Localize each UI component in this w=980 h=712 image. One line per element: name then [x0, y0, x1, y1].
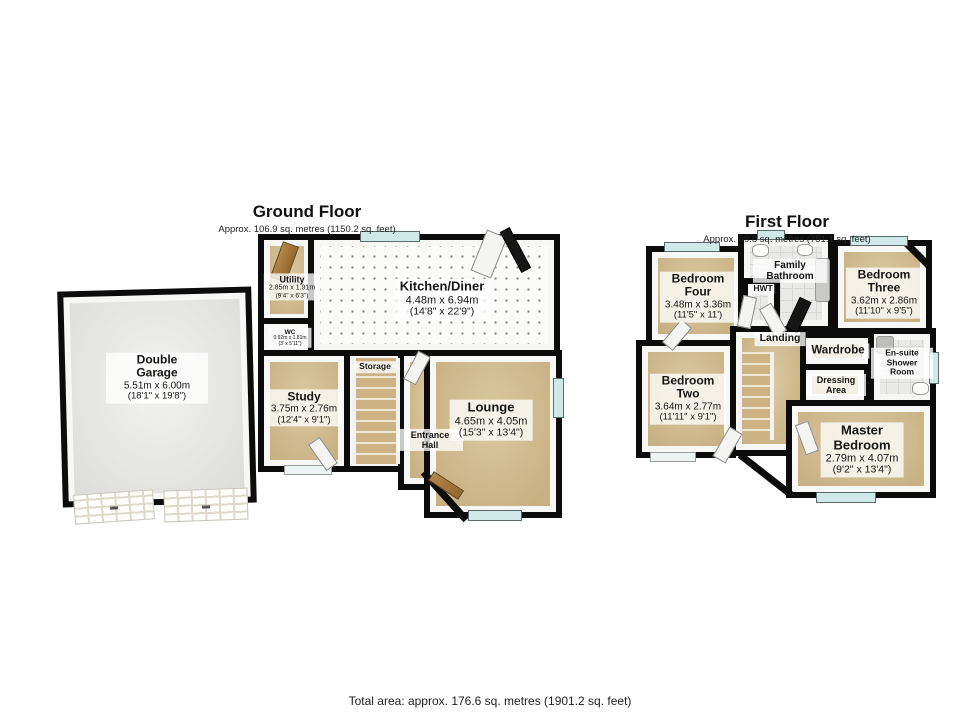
ground-floor-title: Ground Floor Approx. 106.9 sq. metres (1…	[218, 202, 395, 235]
first-floor-stairs	[738, 352, 774, 440]
ground-floor-title-text: Ground Floor	[218, 202, 395, 222]
garage-door-handle-icon	[110, 507, 118, 511]
floorplan-canvas: Ground Floor Approx. 106.9 sq. metres (1…	[0, 0, 980, 712]
lounge-side-window	[553, 378, 564, 418]
garage-door-handle-icon	[202, 505, 210, 508]
label-hwt: HWT	[751, 284, 774, 294]
garage-door-right	[163, 488, 248, 523]
sink-icon	[797, 244, 813, 256]
label-kitchen-diner: Kitchen/Diner 4.48m x 6.94m (14'8" x 22'…	[395, 279, 490, 320]
total-area-text: Total area: approx. 176.6 sq. metres (19…	[349, 694, 632, 708]
label-storage: Storage	[354, 361, 396, 373]
ground-floor-subtitle: Approx. 106.9 sq. metres (1150.2 sq. fee…	[218, 224, 395, 235]
garage-door-left	[73, 489, 155, 525]
label-study: Study 3.75m x 2.76m (12'4" x 9'1")	[266, 389, 342, 426]
label-bedroom-two: Bedroom Two 3.64m x 2.77m (11'11" x 9'1"…	[650, 374, 726, 425]
label-dressing-area: Dressing Area	[806, 374, 866, 396]
label-family-bathroom: Family Bathroom	[753, 259, 827, 283]
label-landing: Landing	[755, 332, 806, 346]
ensuite-toilet-icon	[912, 382, 929, 395]
label-wardrobe: Wardrobe	[806, 344, 869, 359]
bedroom-two-window	[650, 452, 696, 462]
label-wc: WC 0.92m x 1.81m (3' x 5'11")	[268, 328, 311, 348]
toilet-icon	[752, 244, 769, 257]
first-floor-title: First Floor Approx. 69.8 sq. metres (751…	[703, 212, 870, 245]
ground-floor-stairs	[352, 358, 400, 464]
label-master-bedroom: Master Bedroom 2.79m x 4.07m (9'2" x 13'…	[821, 422, 904, 477]
first-floor-subtitle: Approx. 69.8 sq. metres (751.1 sq. feet)	[703, 234, 870, 245]
lounge-bottom-window	[468, 510, 522, 521]
master-bedroom-window	[816, 492, 876, 503]
label-lounge: Lounge 4.65m x 4.05m (15'3" x 13'4")	[450, 400, 533, 441]
label-double-garage: Double Garage 5.51m x 6.00m (18'1" x 19'…	[106, 353, 208, 404]
label-ensuite-shower-room: En-suite Shower Room	[871, 348, 933, 379]
label-bedroom-four: Bedroom Four 3.48m x 3.36m (11'5" x 11')	[660, 272, 736, 323]
first-floor-title-text: First Floor	[703, 212, 870, 232]
label-bedroom-three: Bedroom Three 3.62m x 2.86m (11'10" x 9'…	[846, 268, 922, 319]
label-utility: Utility 2.85m x 1.91m (9'4" x 6'3")	[264, 273, 320, 300]
